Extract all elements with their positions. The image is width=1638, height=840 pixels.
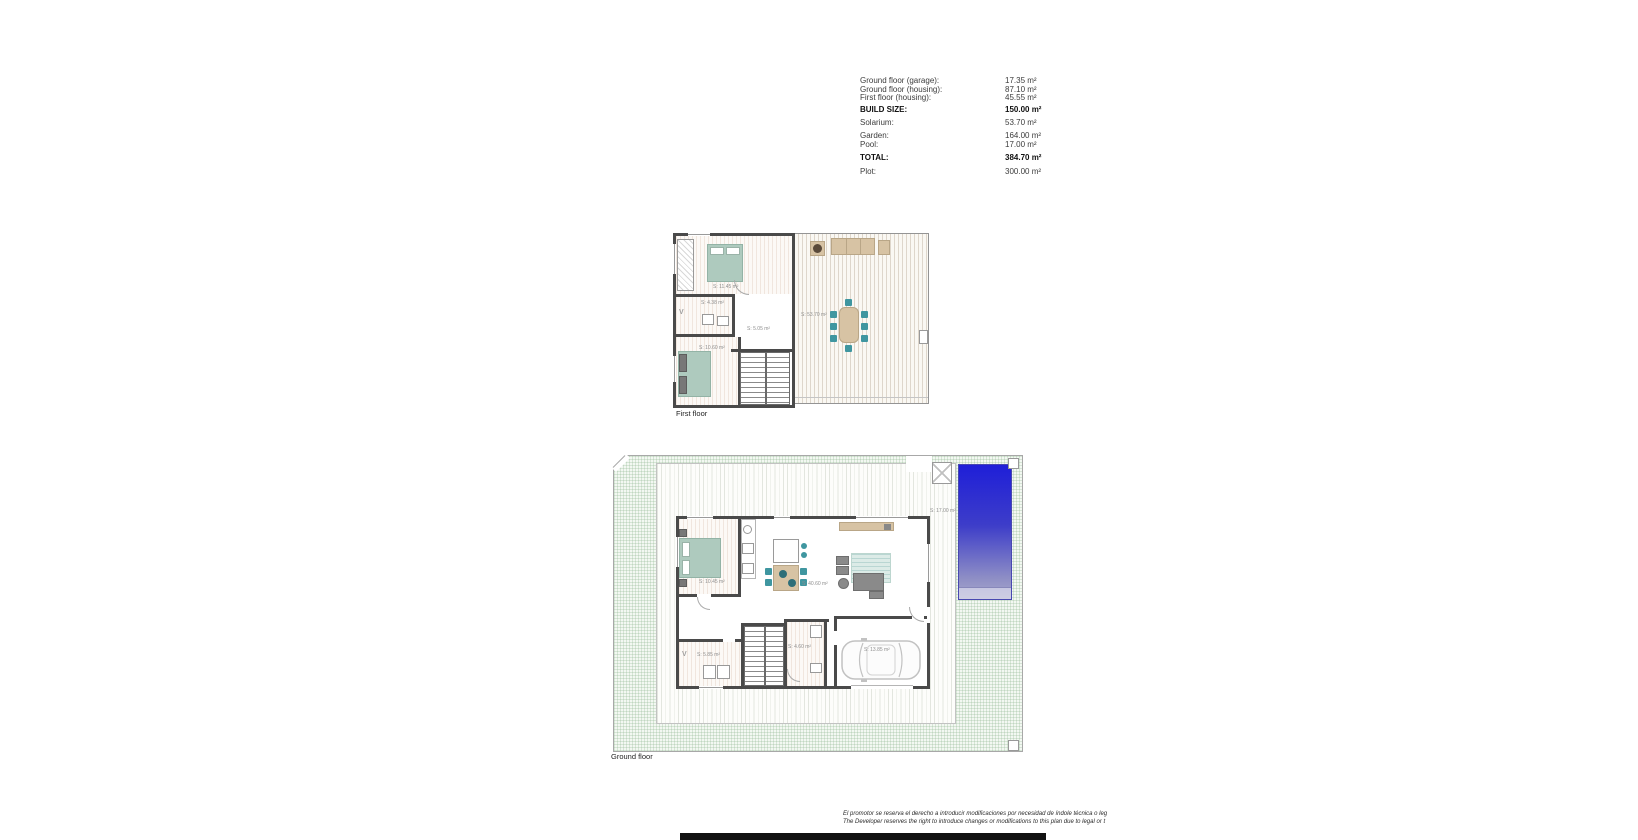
room-label-bedroom1: S: 11.45 m²	[713, 284, 738, 290]
door-opening	[927, 607, 930, 623]
area-value: 150.00 m²	[1005, 106, 1041, 115]
area-value: 45.55 m²	[1005, 94, 1037, 103]
double-bed-icon	[679, 538, 721, 578]
outdoor-sofa-icon	[831, 238, 875, 255]
chair-icon	[830, 323, 837, 330]
chair-icon	[845, 299, 852, 306]
chair-icon	[765, 568, 772, 575]
vent-icon: V	[679, 309, 684, 316]
room-label-bathroom: S: 4.60 m²	[788, 644, 811, 650]
door-arc	[909, 607, 924, 622]
headboard-cushion	[679, 354, 687, 372]
chair-icon	[861, 335, 868, 342]
window-icon	[688, 233, 710, 236]
room-label-solarium: S: 53.70 m²	[801, 312, 827, 318]
plate-icon	[779, 570, 787, 578]
area-row-build-size: BUILD SIZE:150.00 m²	[860, 106, 1055, 115]
sofa-divider	[846, 239, 847, 254]
pool	[958, 464, 1012, 600]
door-opening	[834, 631, 837, 645]
sofa-icon	[853, 573, 884, 591]
nightstand-icon	[679, 529, 687, 537]
toilet-icon	[810, 625, 822, 638]
sink-icon	[810, 663, 822, 673]
area-label: BUILD SIZE:	[860, 106, 907, 115]
first-floor-plan: V S: 11.45 m² S: 4.38 m² S: 5.05 m² S: 1…	[673, 232, 931, 410]
area-label: TOTAL:	[860, 154, 889, 163]
room-label-living-kitchen: S: 40.60 m²	[802, 581, 828, 587]
armchair-icon	[836, 556, 849, 565]
room-label-bedroom: S: 10.45 m²	[699, 579, 725, 585]
stairs-rail	[764, 627, 766, 685]
single-bed-icon	[678, 351, 711, 397]
disclaimer-line-en: The Developer reserves the right to intr…	[843, 818, 1135, 826]
nightstand-icon	[679, 579, 687, 587]
pool-steps	[959, 587, 1011, 599]
room-label-garage: S: 13.85 m²	[864, 647, 890, 653]
door-arc	[697, 597, 710, 610]
window-icon	[673, 244, 676, 274]
garage-door	[851, 683, 913, 689]
area-value: 300.00 m²	[1005, 168, 1041, 177]
area-label: Pool:	[860, 141, 878, 150]
chair-icon	[845, 345, 852, 352]
area-summary-table: Ground floor (garage):17.35 m² Ground fl…	[860, 77, 1055, 176]
room-label-bathroom: S: 4.38 m²	[701, 300, 724, 306]
washer-icon	[703, 665, 716, 679]
car-icon	[839, 637, 923, 683]
area-label: First floor (housing):	[860, 94, 931, 103]
stool-icon	[801, 552, 807, 558]
stairs-rail	[765, 353, 767, 404]
sofa-chaise-icon	[869, 591, 884, 599]
sink-icon	[702, 314, 714, 325]
tv-bench-icon	[839, 522, 894, 531]
window-icon	[673, 356, 676, 382]
area-row: Pool:17.00 m²	[860, 141, 1055, 150]
area-label: Plot:	[860, 168, 876, 177]
headboard-cushion	[679, 376, 687, 394]
kitchen-sink-icon	[743, 525, 752, 534]
dryer-icon	[717, 665, 730, 679]
area-value: 53.70 m²	[1005, 119, 1037, 128]
armchair-icon	[836, 566, 849, 575]
chair-icon	[800, 568, 807, 575]
vent-icon: V	[682, 651, 687, 658]
window-icon	[687, 516, 713, 519]
area-value: 384.70 m²	[1005, 154, 1041, 163]
area-value: 17.00 m²	[1005, 141, 1037, 150]
double-bed-icon	[707, 244, 743, 282]
oven-icon	[742, 563, 754, 574]
stool-icon	[801, 543, 807, 549]
area-row-total: TOTAL:384.70 m²	[860, 154, 1055, 163]
chair-icon	[830, 311, 837, 318]
laundry-floor	[679, 642, 741, 686]
chair-icon	[765, 579, 772, 586]
tv-icon	[884, 524, 891, 530]
room-label-pool: S: 17.00 m²	[930, 508, 956, 514]
chair-icon	[861, 323, 868, 330]
chair-icon	[830, 335, 837, 342]
plate-icon	[788, 579, 796, 587]
window-icon	[774, 516, 790, 519]
stove-icon	[742, 543, 754, 554]
footer-bar	[680, 833, 1046, 840]
sofa-divider	[860, 239, 861, 254]
area-row: First floor (housing):45.55 m²	[860, 94, 1055, 103]
pillow-icon	[726, 247, 740, 255]
room-label-hall: S: 5.05 m²	[747, 326, 770, 332]
area-row: Plot:300.00 m²	[860, 168, 1055, 177]
toilet-icon	[717, 316, 729, 326]
window-icon	[676, 537, 679, 567]
solarium-terrace	[793, 233, 929, 404]
pillow-icon	[682, 542, 690, 557]
plot-chamfer	[602, 444, 630, 472]
wardrobe-icon	[677, 239, 694, 291]
plot-pillar	[1008, 740, 1019, 751]
parapet-line	[794, 397, 928, 398]
wall-segment	[834, 616, 837, 686]
bbq-icon	[810, 241, 825, 256]
first-floor-interior: V	[673, 233, 795, 408]
outdoor-bench-icon	[878, 240, 890, 255]
ground-floor-caption: Ground floor	[611, 752, 653, 761]
window-icon	[699, 686, 723, 689]
pillow-icon	[710, 247, 724, 255]
window-icon	[927, 544, 930, 582]
area-label: Solarium:	[860, 119, 894, 128]
area-row: Solarium:53.70 m²	[860, 119, 1055, 128]
outdoor-shower-icon	[932, 462, 952, 484]
deck-gap	[906, 456, 932, 472]
plot-pillar	[1008, 458, 1019, 469]
chair-icon	[861, 311, 868, 318]
terrace-step	[919, 330, 928, 344]
ground-floor-house: V S: 10.45 m² S: 40.60 m² S: 4.60 m² S: …	[676, 516, 930, 689]
wall-segment	[824, 619, 827, 686]
kitchen-island-icon	[773, 539, 799, 563]
room-label-laundry: S: 5.85 m²	[697, 652, 720, 658]
stairs-icon	[740, 352, 790, 405]
stairs-icon	[744, 626, 784, 686]
pillow-icon	[682, 560, 690, 575]
first-floor-caption: First floor	[676, 409, 707, 418]
ground-floor-plan: S: 17.00 m²	[613, 455, 1023, 752]
dining-table-icon	[773, 565, 799, 591]
dining-table-icon	[839, 307, 859, 343]
wall-segment	[732, 294, 735, 337]
pouf-icon	[838, 578, 849, 589]
disclaimer-line-es: El promotor se reserva el derecho a intr…	[843, 810, 1135, 818]
bbq-grill-icon	[813, 244, 822, 253]
disclaimer: El promotor se reserva el derecho a intr…	[843, 810, 1135, 826]
window-icon	[856, 516, 908, 519]
room-label-bedroom2: S: 10.60 m²	[699, 345, 725, 351]
